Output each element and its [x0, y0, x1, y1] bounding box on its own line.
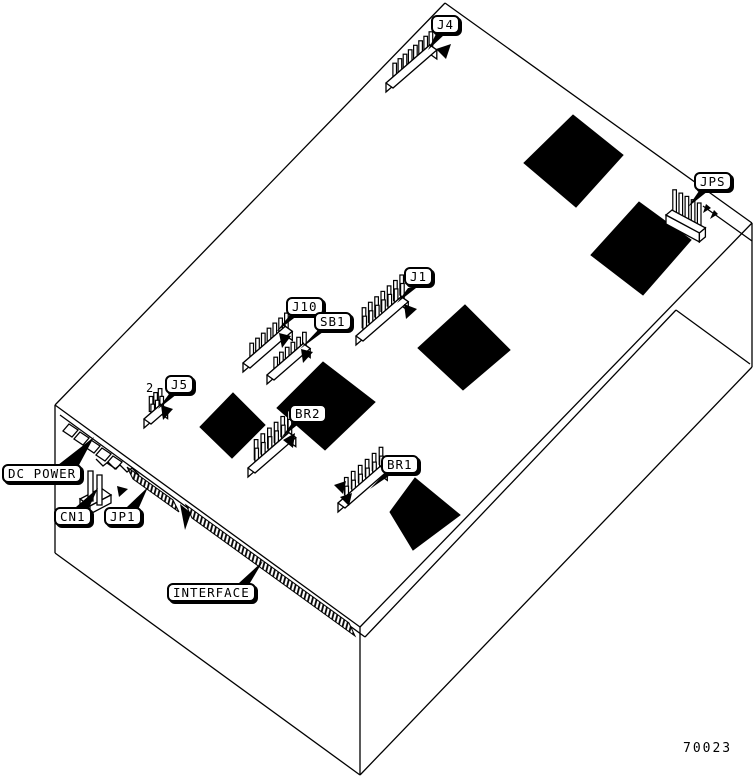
callout-interface: INTERFACE	[167, 583, 256, 602]
ic-chip-6	[390, 478, 460, 550]
isometric-board-drawing	[0, 0, 753, 777]
jp1-pin1-arrow	[117, 486, 128, 497]
callout-j4: J4	[431, 15, 460, 34]
connector-j1	[356, 275, 408, 345]
dc-power-callout-pointer	[58, 437, 94, 465]
board-diagram: J4JPSJ1J10SB1J5BR2BR1DC POWERCN1JP1INTER…	[0, 0, 753, 777]
j1-pin1-arrow	[404, 304, 417, 319]
ic-chip-1	[524, 115, 623, 207]
callout-br1: BR1	[381, 455, 419, 474]
outline-edge	[676, 310, 750, 364]
sb1-pin1-arrow	[301, 349, 313, 363]
interface-edge-connector	[186, 505, 355, 636]
figure-number: 70023	[683, 741, 732, 756]
callout-cn1: CN1	[54, 507, 92, 526]
connector-j4	[386, 32, 437, 92]
callout-j5: J5	[165, 375, 194, 394]
callout-br2: BR2	[289, 404, 327, 423]
cn1-prong-2	[97, 475, 102, 505]
edge-connectors	[127, 467, 355, 636]
outline-edge	[703, 206, 752, 241]
callout-sb1: SB1	[314, 312, 352, 331]
callout-dc-power: DC POWER	[2, 464, 82, 483]
callout-j1: J1	[404, 267, 433, 286]
ic-chip-3	[418, 305, 510, 390]
j4-pin1-arrow	[436, 44, 451, 59]
callout-jp1: JP1	[104, 507, 142, 526]
pin-2-marker: 2	[146, 381, 153, 395]
outline-edge	[360, 367, 752, 775]
callout-jps: JPS	[694, 172, 732, 191]
